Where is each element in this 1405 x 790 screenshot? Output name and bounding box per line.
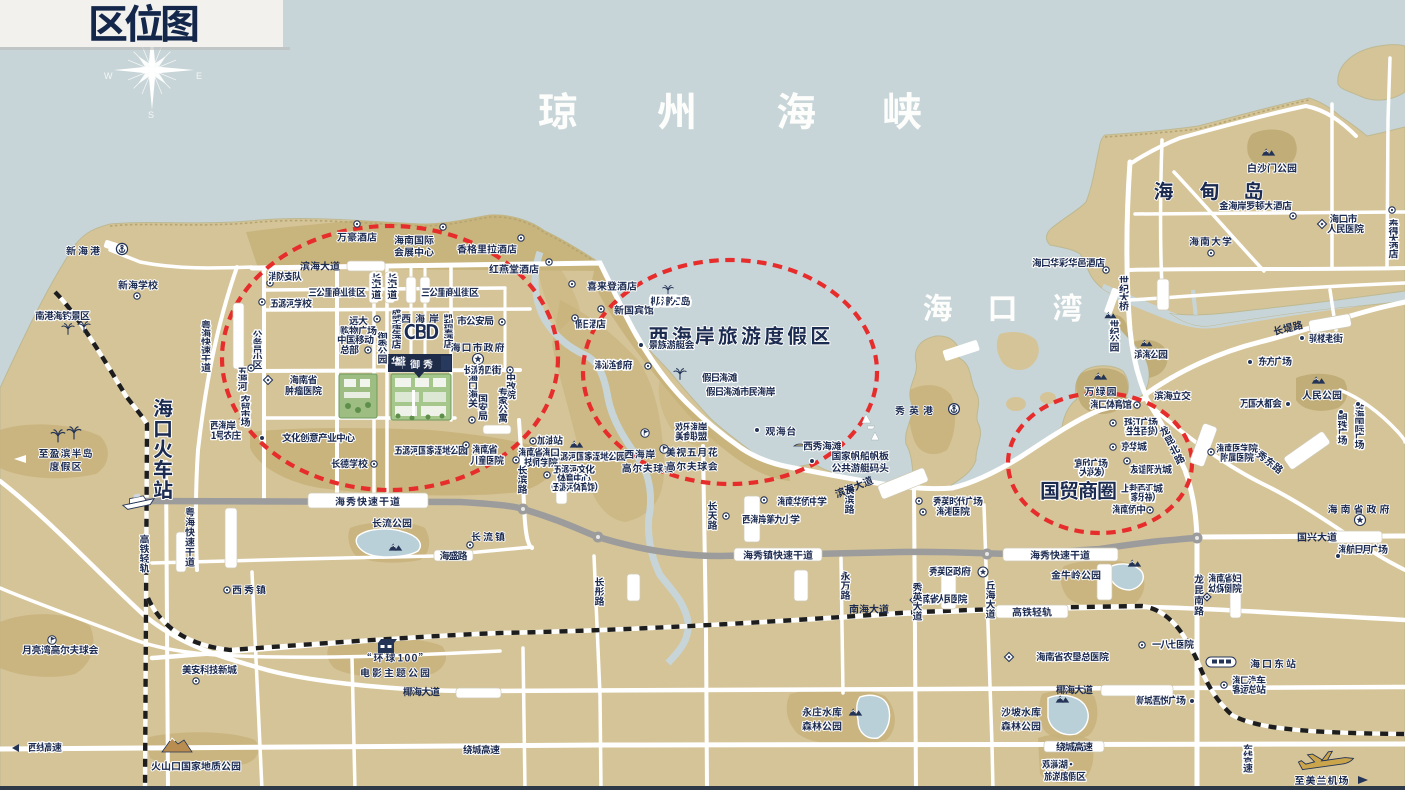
svg-text:E: E	[196, 71, 202, 81]
svg-text:S: S	[148, 110, 154, 120]
svg-text:W: W	[104, 71, 113, 81]
